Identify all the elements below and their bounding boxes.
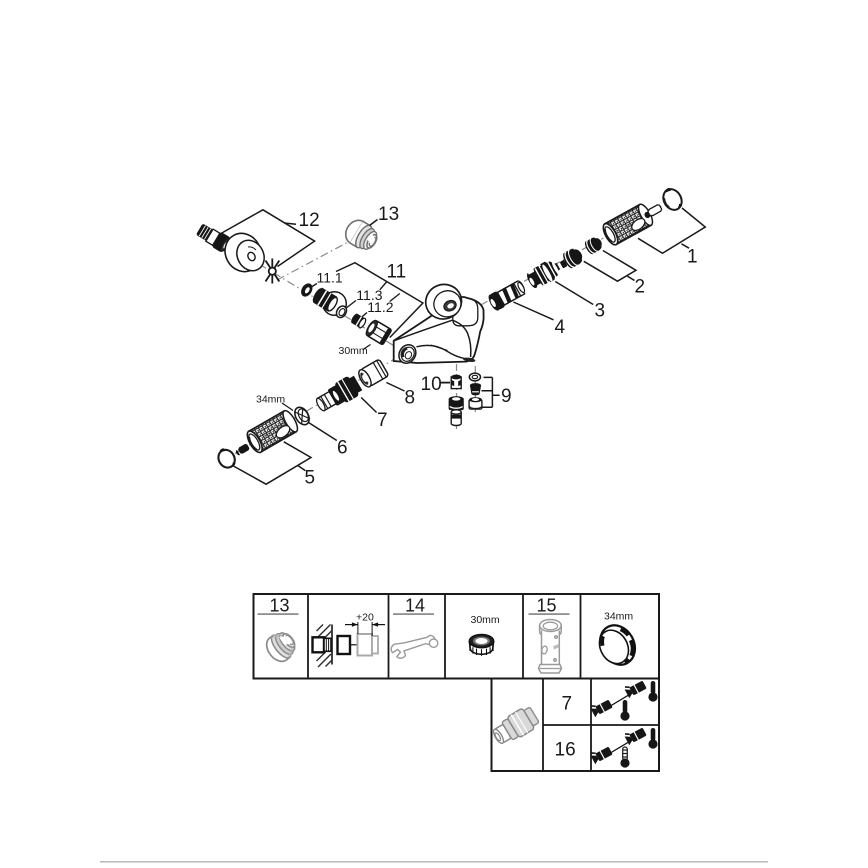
svg-text:7: 7: [377, 410, 388, 431]
svg-text:11.1: 11.1: [317, 269, 343, 285]
svg-text:11: 11: [387, 261, 407, 282]
svg-text:10: 10: [421, 374, 442, 395]
svg-text:13: 13: [270, 595, 290, 615]
svg-text:11.2: 11.2: [367, 299, 393, 315]
svg-text:4: 4: [555, 317, 566, 338]
svg-text:34mm: 34mm: [256, 393, 285, 405]
svg-text:14: 14: [405, 595, 425, 615]
svg-text:30mm: 30mm: [471, 614, 500, 626]
svg-text:9: 9: [501, 386, 512, 407]
svg-text:12: 12: [299, 210, 320, 231]
svg-text:5: 5: [305, 468, 316, 489]
svg-text:30mm: 30mm: [339, 345, 368, 357]
svg-text:3: 3: [595, 301, 606, 322]
svg-text:8: 8: [405, 388, 416, 409]
svg-text:15: 15: [537, 595, 557, 615]
svg-text:13: 13: [378, 204, 399, 225]
svg-text:34mm: 34mm: [604, 611, 633, 623]
svg-text:7: 7: [562, 694, 573, 715]
svg-text:2: 2: [635, 277, 646, 298]
svg-text:1: 1: [687, 247, 698, 268]
svg-text:16: 16: [555, 740, 576, 761]
svg-text:6: 6: [337, 438, 348, 459]
svg-text:+20: +20: [356, 611, 374, 623]
